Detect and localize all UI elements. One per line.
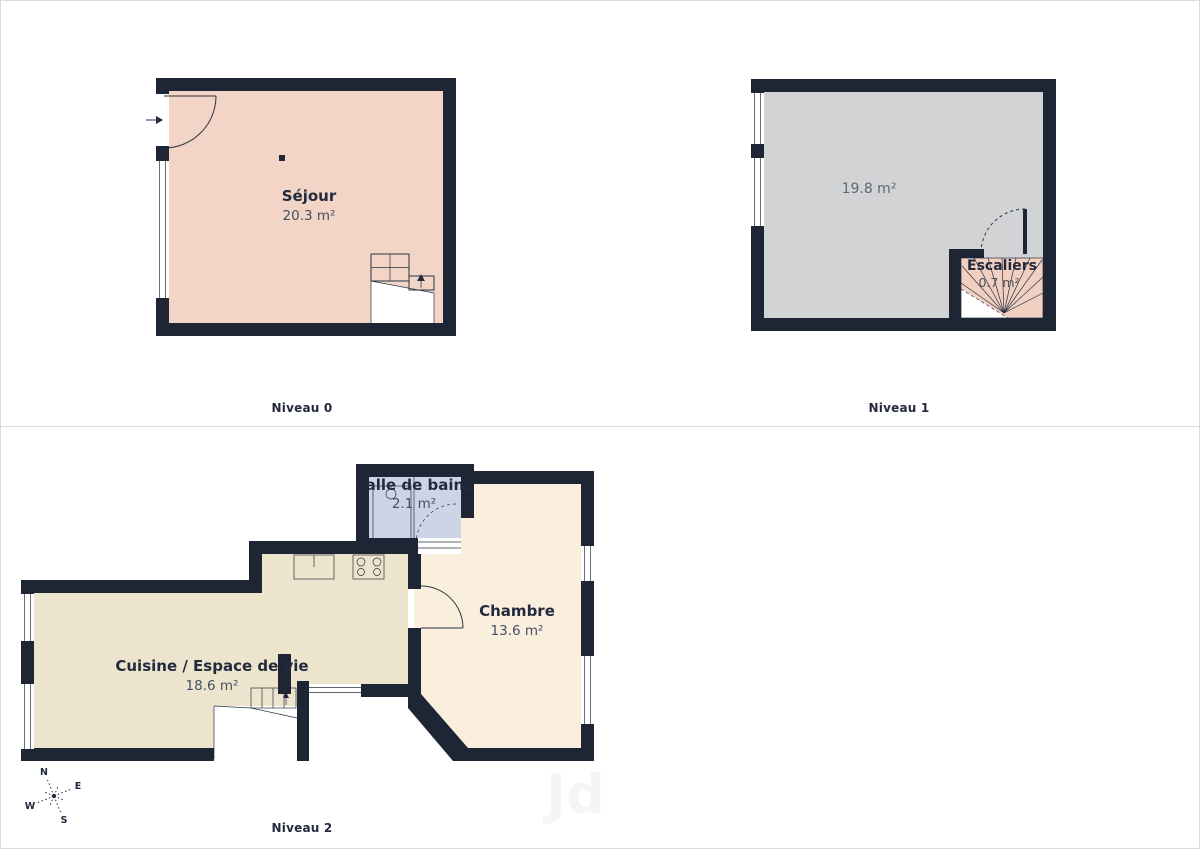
window — [581, 546, 594, 581]
room-area-escaliers: 0.7 m² — [978, 275, 1019, 290]
window — [581, 656, 594, 724]
panel-divider — [1, 426, 1199, 427]
ceiling-point — [279, 155, 285, 161]
room-area-cuisine: 18.6 m² — [186, 678, 239, 694]
room-area-niveau1: 19.8 m² — [842, 181, 897, 197]
floor-plans-page: Séjour 20.3 m² — [0, 0, 1200, 849]
room-area-sejour: 20.3 m² — [283, 208, 336, 224]
doorway-threshold — [418, 538, 461, 554]
compass-e: E — [75, 781, 82, 792]
window — [751, 93, 764, 144]
room-label-salle-de-bains: Salle de bains — [355, 476, 473, 494]
level-label-niveau-2: Niveau 2 — [272, 821, 333, 835]
watermark: Jd — [546, 763, 605, 826]
room-area-chambre: 13.6 m² — [491, 623, 544, 639]
compass-s: S — [61, 815, 68, 826]
floor-plan-niveau-2: Salle de bains 2.1 m² Cuisine / Espace d… — [16, 456, 606, 771]
room-label-escaliers: Escaliers — [967, 258, 1037, 274]
room-area-salle-de-bains: 2.1 m² — [392, 496, 436, 512]
window — [21, 684, 34, 749]
level-label-niveau-0: Niveau 0 — [272, 401, 333, 415]
floor-plan-niveau-1: 19.8 m² Escaliers 0.7 m² — [746, 73, 1061, 335]
room-label-cuisine: Cuisine / Espace de vie — [115, 657, 308, 675]
level-label-niveau-1: Niveau 1 — [869, 401, 930, 415]
entry-arrow-icon — [146, 116, 163, 124]
window — [21, 594, 34, 641]
compass-n: N — [40, 767, 48, 778]
compass-w: W — [25, 801, 36, 812]
window — [156, 161, 169, 298]
room-label-chambre: Chambre — [479, 602, 555, 620]
window — [751, 158, 764, 226]
compass-rose: N E S W — [11, 759, 101, 834]
doorway-threshold — [308, 684, 361, 697]
room-label-sejour: Séjour — [282, 187, 337, 205]
floor-plan-niveau-0: Séjour 20.3 m² — [146, 73, 461, 341]
